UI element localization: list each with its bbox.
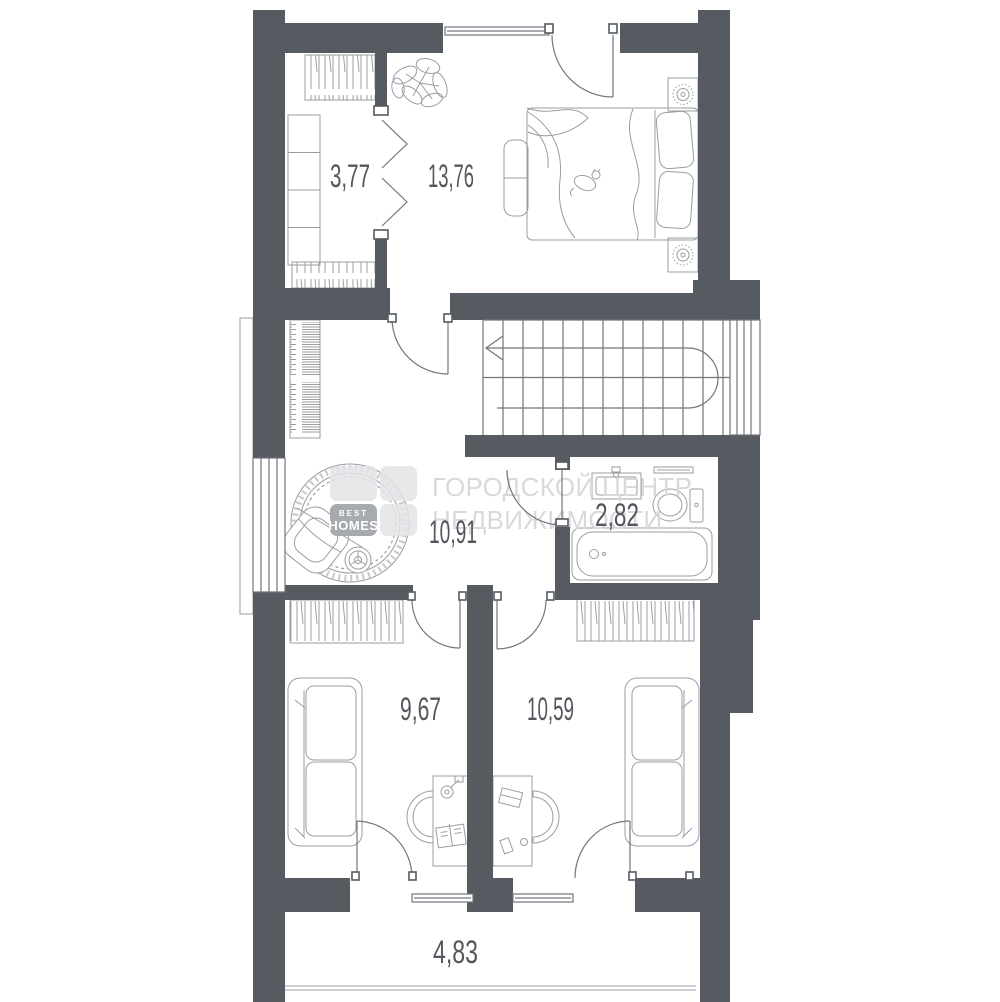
nightstand-bottom — [668, 238, 698, 272]
bed — [527, 108, 698, 240]
chair-left — [407, 791, 433, 843]
wardrobe-room-left — [290, 600, 403, 643]
bedroom-entry-door — [552, 35, 613, 97]
logo-tile-top-left — [330, 466, 377, 501]
stairs — [483, 320, 760, 435]
floor-plan-svg: BEST HOMES ГОРОДСКОЙ ЦЕНТР НЕДВИЖИМОСТИ — [0, 0, 1000, 1002]
room-right-door — [497, 600, 546, 649]
room-label-balcony: 4,83 — [433, 934, 478, 970]
room-label-hall: 10,91 — [429, 514, 477, 550]
logo-tile-top-right — [380, 466, 417, 501]
french-balcony — [240, 318, 253, 614]
room-label-bathroom: 2,82 — [595, 497, 639, 533]
sofa-left — [288, 678, 362, 846]
room-label-room-left: 9,67 — [400, 691, 441, 727]
room-left-door — [412, 600, 460, 648]
logo-tile-bottom-right — [380, 504, 417, 536]
logo-text-bottom: HOMES — [328, 518, 378, 533]
balcony-window-left — [412, 894, 473, 902]
side-table — [345, 547, 371, 573]
hall-bedroom-door — [392, 318, 448, 374]
balcony-door-right — [575, 821, 630, 878]
chair-right — [533, 791, 559, 843]
room-label-bedroom: 13,76 — [428, 158, 474, 194]
room-label-wardrobe: 3,77 — [330, 158, 370, 194]
logo-text-top: BEST — [339, 509, 368, 518]
cat-on-bed — [570, 169, 600, 196]
bookshelf — [290, 320, 320, 438]
plant — [390, 56, 450, 109]
balcony-window-right — [513, 894, 573, 902]
desk-left — [433, 776, 472, 866]
balcony-door-left — [357, 821, 412, 878]
sofa-right — [625, 678, 699, 846]
wardrobe-folding-doors — [382, 120, 407, 226]
nightstand-top — [668, 78, 698, 111]
stairs-window — [730, 320, 760, 435]
bed-bench — [504, 140, 528, 216]
floor-plan-canvas: BEST HOMES ГОРОДСКОЙ ЦЕНТР НЕДВИЖИМОСТИ — [0, 0, 1000, 1002]
balcony-railing — [285, 986, 696, 990]
room-label-room-right: 10,59 — [527, 691, 574, 727]
bathtub — [572, 528, 712, 580]
desk-right — [493, 776, 532, 866]
bedroom-window — [445, 27, 549, 35]
hall-window — [253, 458, 285, 592]
wardrobe-room-right — [577, 598, 694, 641]
